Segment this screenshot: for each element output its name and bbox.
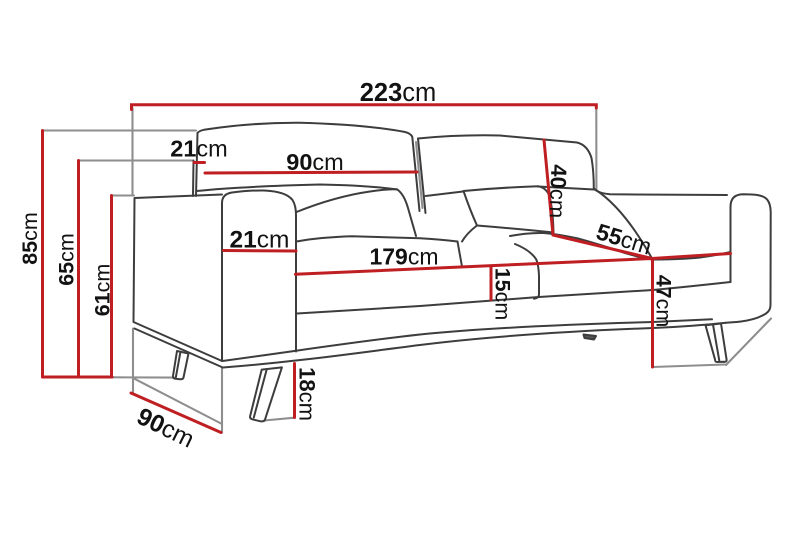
svg-text:61cm: 61cm [91,264,115,317]
svg-text:90cm: 90cm [286,149,343,175]
svg-text:21cm: 21cm [170,136,227,162]
svg-text:179cm: 179cm [369,244,438,270]
svg-text:40cm: 40cm [545,164,572,219]
svg-text:15cm: 15cm [491,268,515,321]
svg-text:85cm: 85cm [18,212,42,265]
svg-text:223cm: 223cm [360,79,437,107]
svg-text:65cm: 65cm [55,233,79,286]
svg-text:47cm: 47cm [652,275,676,328]
svg-text:21cm: 21cm [230,227,290,254]
svg-text:18cm: 18cm [295,367,320,421]
